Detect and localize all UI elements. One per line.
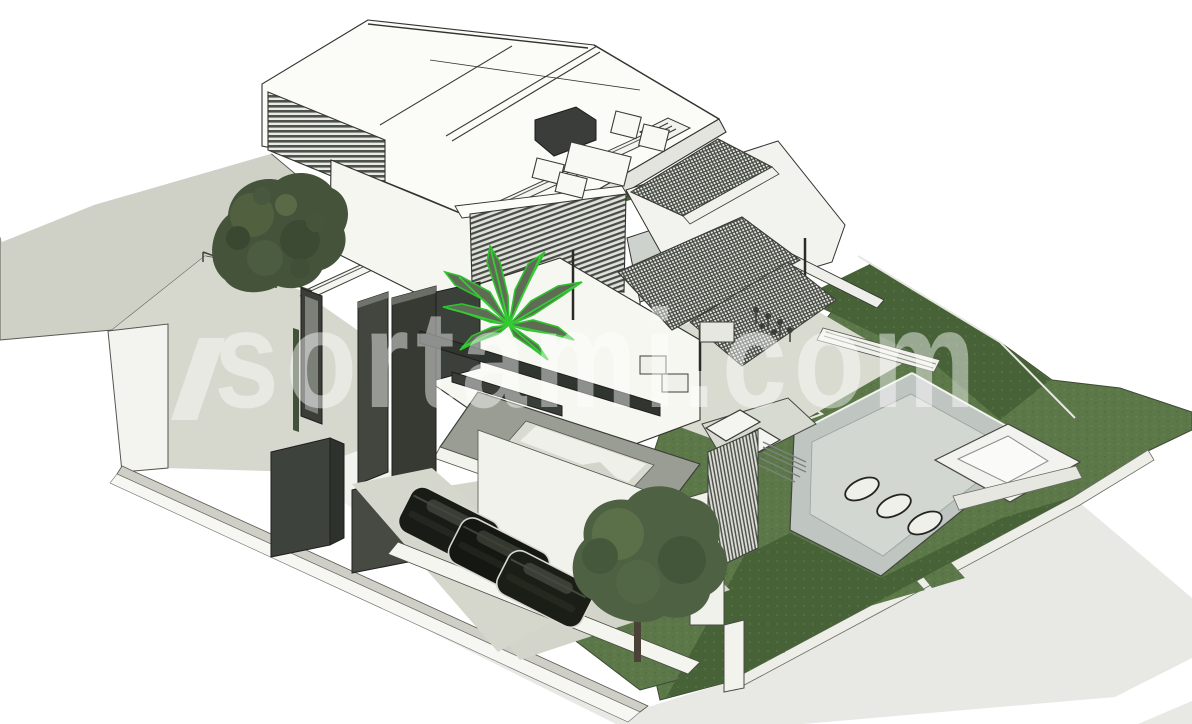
svg-text:sortami.com: sortami.com xyxy=(214,282,982,437)
